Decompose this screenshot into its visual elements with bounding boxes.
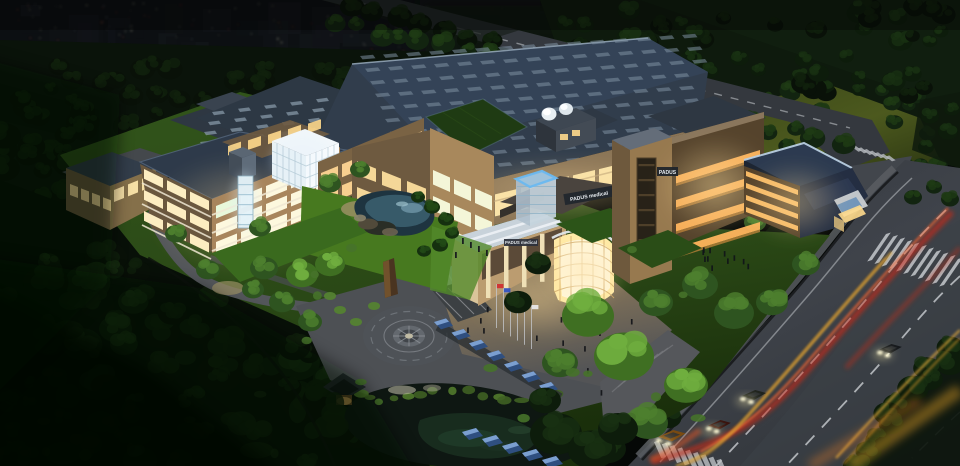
svg-text:PADUS medical: PADUS medical: [505, 240, 537, 245]
svg-text:PADUS: PADUS: [659, 170, 677, 176]
